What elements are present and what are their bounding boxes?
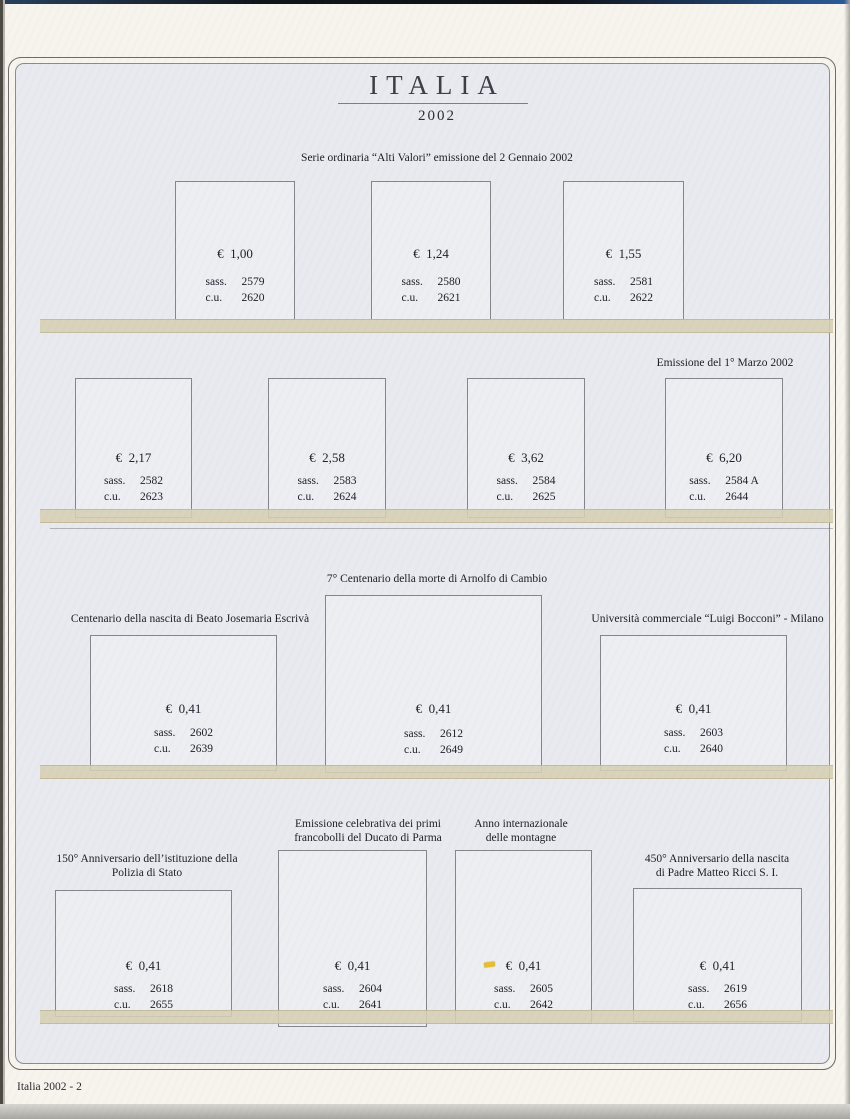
stamp-box: € 0,41 sass.2603 c.u.2640 [600, 635, 787, 771]
sass-number: 2604 [359, 983, 382, 995]
stamp-value: € 0,41 [634, 958, 801, 974]
sass-number: 2582 [140, 475, 163, 487]
stamp-box: € 6,20 sass.2584 A c.u.2644 [665, 378, 783, 518]
sass-number: 2612 [440, 728, 463, 740]
cu-number: 2649 [440, 744, 463, 756]
sass-label: sass. [688, 982, 724, 998]
page-edge-bottom [0, 1104, 850, 1119]
cu-number: 2622 [630, 292, 653, 304]
sass-number: 2602 [190, 727, 213, 739]
sass-number: 2605 [530, 983, 553, 995]
cu-label: c.u. [594, 291, 630, 307]
sass-number: 2584 [533, 475, 556, 487]
page-year: 2002 [30, 108, 844, 125]
sass-label: sass. [298, 474, 334, 490]
hinge-strip [40, 509, 833, 523]
sass-label: sass. [104, 474, 140, 490]
stamp-value: € 6,20 [666, 450, 782, 466]
sass-label: sass. [404, 727, 440, 743]
stamp-box: € 0,41 sass.2618 c.u.2655 [55, 890, 232, 1017]
sass-label: sass. [497, 474, 533, 490]
caption-line: 450° Anniversario della nascita [612, 852, 822, 866]
sass-label: sass. [689, 474, 725, 490]
stamp-box: € 1,00 sass.2579 c.u.2620 [175, 181, 295, 320]
cu-label: c.u. [402, 291, 438, 307]
caption-line: delle montagne [452, 831, 590, 845]
cu-label: c.u. [497, 490, 533, 506]
page-edge-left [0, 0, 5, 1119]
stamp-catalog: sass.2618 c.u.2655 [56, 982, 231, 1014]
sass-label: sass. [664, 726, 700, 742]
stamp-box: € 0,41 sass.2612 c.u.2649 [325, 595, 542, 773]
sass-label: sass. [323, 982, 359, 998]
sass-label: sass. [494, 982, 530, 998]
stamp-value: € 0,41 [601, 701, 786, 717]
stamp-catalog: sass.2579 c.u.2620 [176, 275, 294, 307]
hinge-strip [40, 765, 833, 779]
sass-number: 2579 [242, 276, 265, 288]
stamp-catalog: sass.2580 c.u.2621 [372, 275, 490, 307]
stamp-value: € 0,41 [91, 701, 276, 717]
stamp-value: € 0,41 [326, 701, 541, 717]
cu-number: 2639 [190, 743, 213, 755]
stamp-box: € 1,24 sass.2580 c.u.2621 [371, 181, 491, 320]
stamp-value: € 3,62 [468, 450, 584, 466]
sass-number: 2583 [334, 475, 357, 487]
stamp-catalog: sass.2584 c.u.2625 [468, 474, 584, 506]
stamp-value: € 0,41 [456, 958, 591, 974]
sass-number: 2584 A [725, 475, 759, 487]
cu-number: 2644 [725, 491, 748, 503]
cu-label: c.u. [104, 490, 140, 506]
stamp-catalog: sass.2619 c.u.2656 [634, 982, 801, 1014]
cu-label: c.u. [154, 742, 190, 758]
stamp-caption: Anno internazionale delle montagne [452, 817, 590, 846]
separator-line [50, 528, 833, 529]
section-header: Serie ordinaria “Alti Valori” emissione … [30, 151, 844, 165]
caption-line: 150° Anniversario dell’istituzione della [42, 852, 252, 866]
section-header: Emissione del 1° Marzo 2002 [620, 356, 830, 370]
cu-label: c.u. [298, 490, 334, 506]
stamp-box: € 3,62 sass.2584 c.u.2625 [467, 378, 585, 518]
stamp-catalog: sass.2603 c.u.2640 [601, 726, 786, 758]
stamp-box: € 0,41 sass.2605 c.u.2642 [455, 850, 592, 1024]
sass-number: 2581 [630, 276, 653, 288]
stamp-box: € 0,41 sass.2604 c.u.2641 [278, 850, 427, 1027]
stamp-caption: 150° Anniversario dell’istituzione della… [42, 852, 252, 881]
stamp-value: € 1,00 [176, 246, 294, 262]
sass-number: 2618 [150, 983, 173, 995]
hinge-strip [40, 319, 833, 333]
cu-label: c.u. [404, 743, 440, 759]
stamp-catalog: sass.2604 c.u.2641 [279, 982, 426, 1014]
cu-number: 2624 [334, 491, 357, 503]
stamp-box: € 2,58 sass.2583 c.u.2624 [268, 378, 386, 518]
cu-label: c.u. [664, 742, 700, 758]
stamp-value: € 1,55 [564, 246, 683, 262]
sass-label: sass. [594, 275, 630, 291]
stamp-catalog: sass.2583 c.u.2624 [269, 474, 385, 506]
title-underline [338, 103, 528, 104]
stamp-catalog: sass.2605 c.u.2642 [456, 982, 591, 1014]
stamp-box: € 0,41 sass.2619 c.u.2656 [633, 888, 802, 1022]
stamp-box: € 0,41 sass.2602 c.u.2639 [90, 635, 277, 771]
sass-number: 2619 [724, 983, 747, 995]
stamp-box: € 2,17 sass.2582 c.u.2623 [75, 378, 192, 518]
stamp-catalog: sass.2584 A c.u.2644 [666, 474, 782, 506]
caption-line: Emissione celebrativa dei primi [270, 817, 466, 831]
caption-line: Polizia di Stato [42, 866, 252, 880]
stamp-value: € 1,24 [372, 246, 490, 262]
stamp-catalog: sass.2582 c.u.2623 [76, 474, 191, 506]
caption-line: Anno internazionale [452, 817, 590, 831]
stamp-catalog: sass.2581 c.u.2622 [564, 275, 683, 307]
stamp-caption: Emissione celebrativa dei primi francobo… [270, 817, 466, 846]
cu-label: c.u. [206, 291, 242, 307]
page-title: ITALIA [30, 70, 844, 101]
stamp-value: € 2,17 [76, 450, 191, 466]
cu-number: 2620 [242, 292, 265, 304]
sass-number: 2580 [438, 276, 461, 288]
stamp-caption: 7° Centenario della morte di Arnolfo di … [30, 572, 844, 586]
stamp-caption: Centenario della nascita di Beato Josema… [60, 612, 320, 626]
sass-number: 2603 [700, 727, 723, 739]
sass-label: sass. [154, 726, 190, 742]
cu-number: 2623 [140, 491, 163, 503]
stamp-value: € 0,41 [279, 958, 426, 974]
stamp-value: € 0,41 [56, 958, 231, 974]
sass-label: sass. [402, 275, 438, 291]
page-edge-top [0, 0, 850, 4]
stamp-catalog: sass.2612 c.u.2649 [326, 727, 541, 759]
cu-number: 2625 [533, 491, 556, 503]
cu-number: 2640 [700, 743, 723, 755]
hinge-strip [40, 1010, 833, 1024]
cu-label: c.u. [689, 490, 725, 506]
page-edge-right [844, 0, 850, 1119]
sass-label: sass. [206, 275, 242, 291]
stamp-caption: 450° Anniversario della nascita di Padre… [612, 852, 822, 881]
sass-label: sass. [114, 982, 150, 998]
stamp-value: € 2,58 [269, 450, 385, 466]
album-page: ITALIA 2002 Serie ordinaria “Alti Valori… [0, 0, 850, 1119]
caption-line: di Padre Matteo Ricci S. I. [612, 866, 822, 880]
stamp-caption: Università commerciale “Luigi Bocconi” -… [575, 612, 840, 626]
page-footer: Italia 2002 - 2 [17, 1081, 82, 1093]
cu-number: 2621 [438, 292, 461, 304]
stamp-box: € 1,55 sass.2581 c.u.2622 [563, 181, 684, 320]
stamp-catalog: sass.2602 c.u.2639 [91, 726, 276, 758]
caption-line: francobolli del Ducato di Parma [270, 831, 466, 845]
